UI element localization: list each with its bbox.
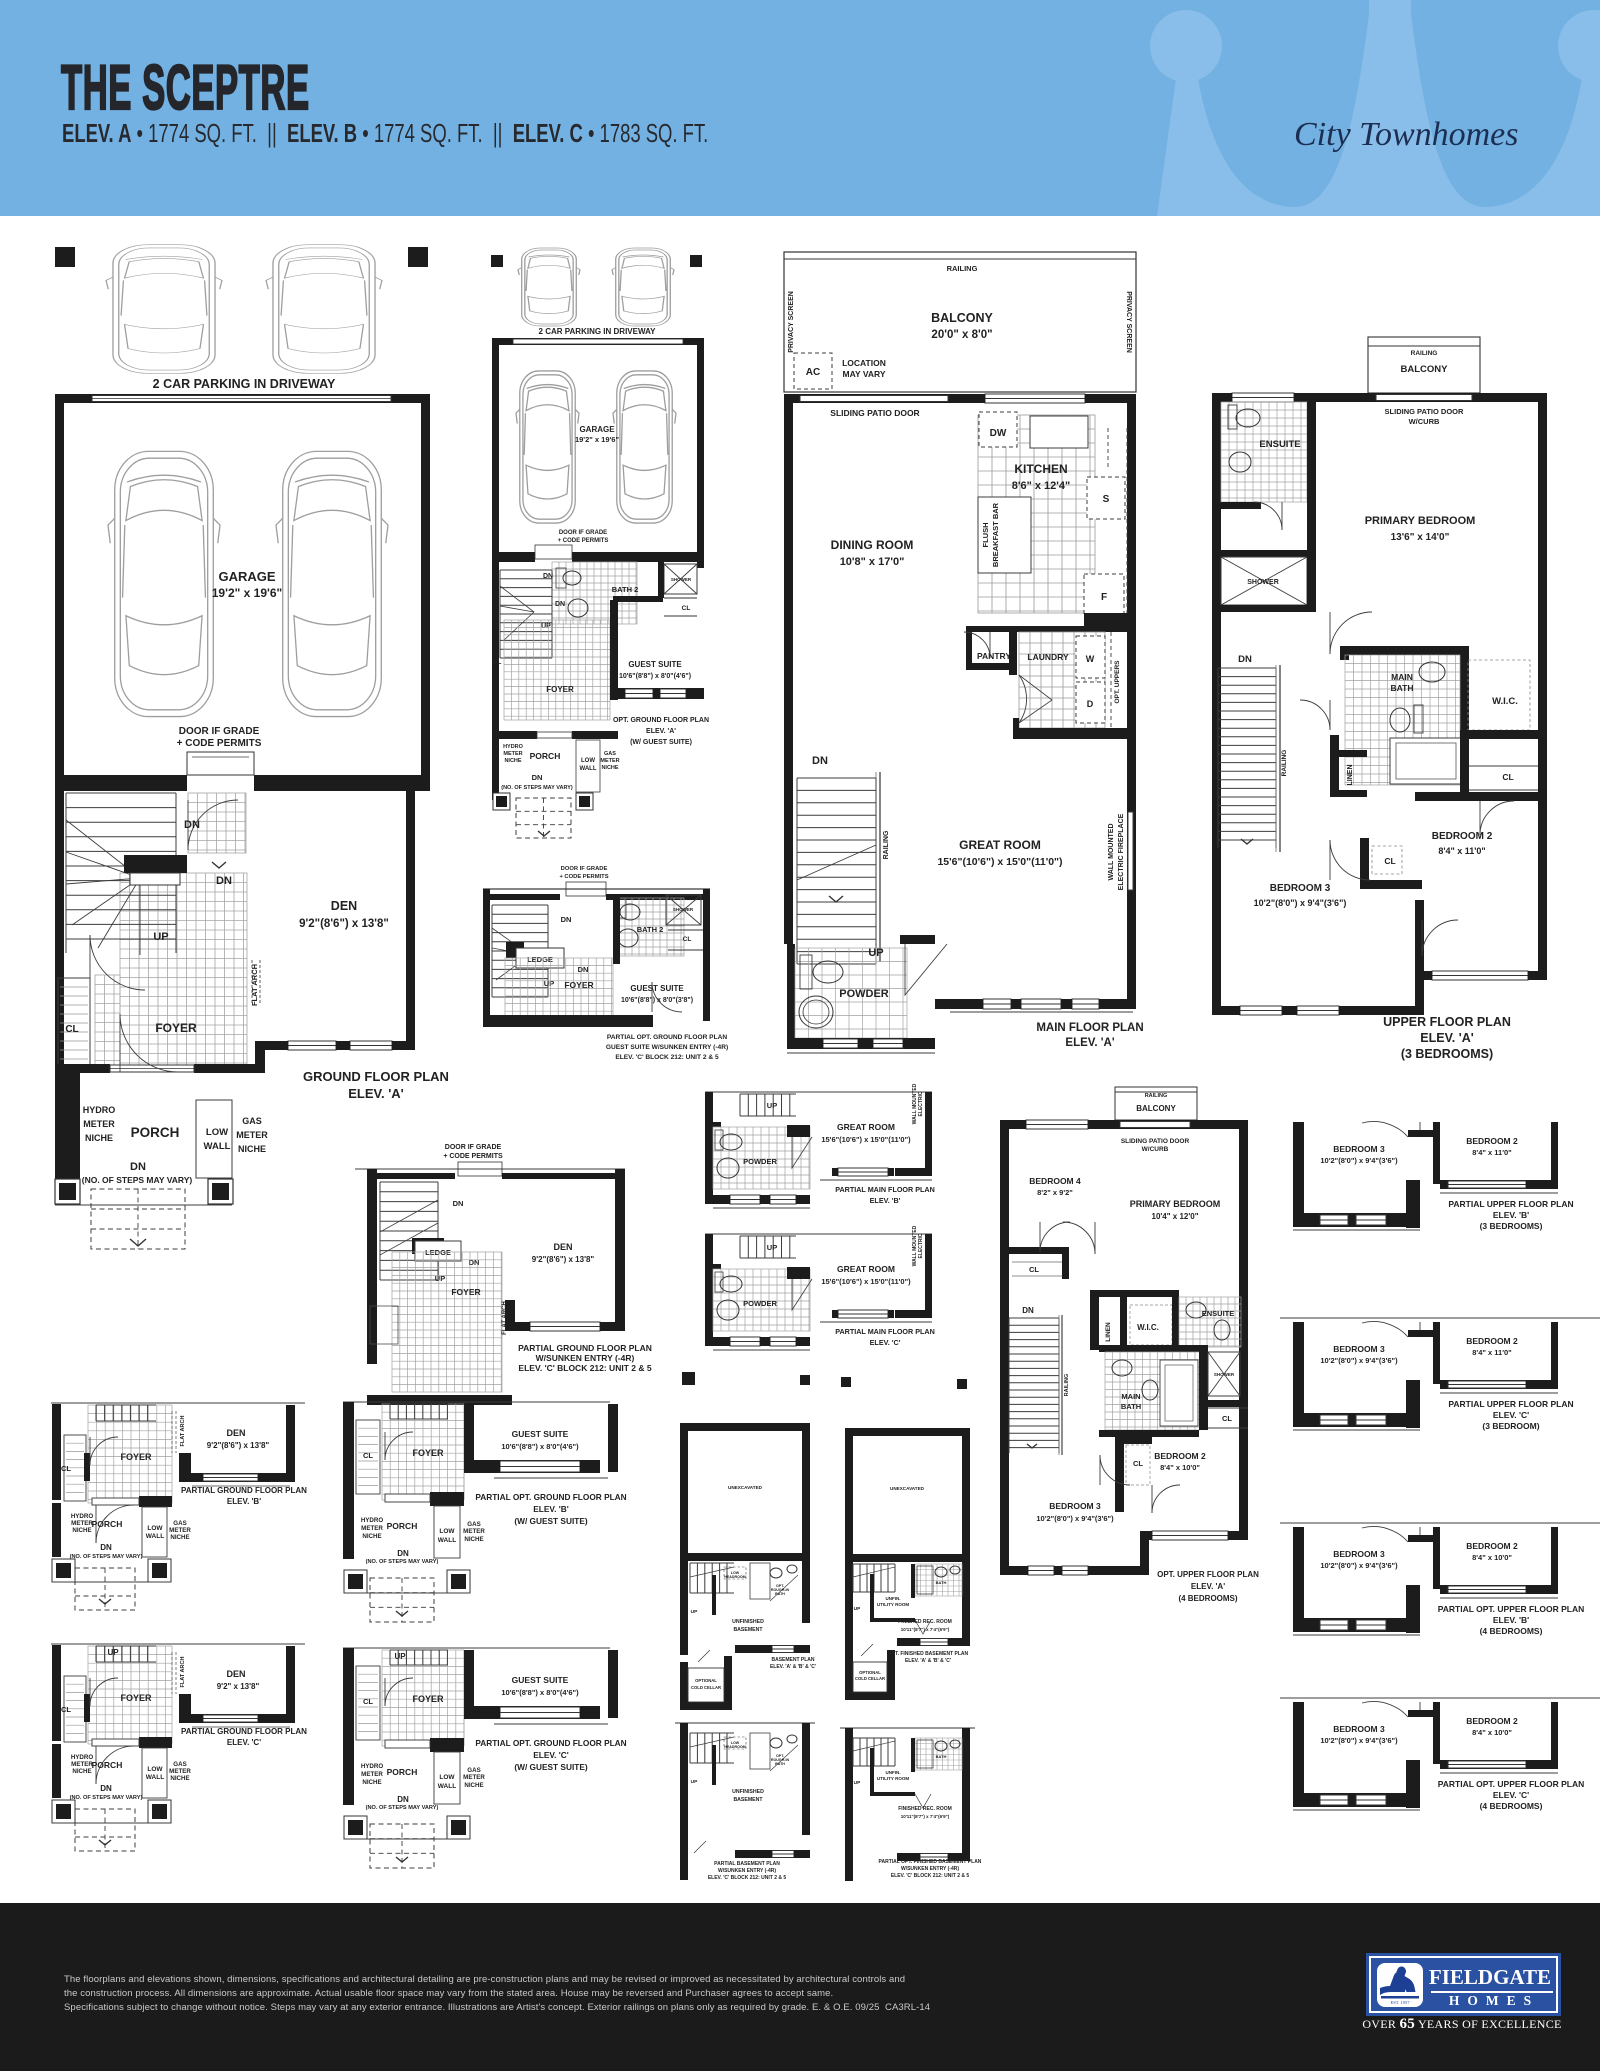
svg-text:LEDGE: LEDGE xyxy=(425,1248,451,1257)
svg-text:BEDROOM 3: BEDROOM 3 xyxy=(1333,1344,1385,1354)
svg-text:BATH 2: BATH 2 xyxy=(637,925,664,934)
svg-text:PORCH: PORCH xyxy=(530,751,561,761)
svg-text:DEN: DEN xyxy=(331,899,357,913)
svg-text:GAS: GAS xyxy=(467,1521,480,1528)
svg-text:BREAKFAST BAR: BREAKFAST BAR xyxy=(991,502,1000,567)
svg-text:8'6" x 12'4": 8'6" x 12'4" xyxy=(1012,480,1070,492)
svg-text:DN: DN xyxy=(100,1543,112,1552)
svg-text:W: W xyxy=(1086,654,1095,664)
svg-text:BEDROOM 3: BEDROOM 3 xyxy=(1049,1501,1101,1511)
svg-text:SHOWER: SHOWER xyxy=(671,577,692,582)
svg-text:SHOWER: SHOWER xyxy=(673,907,694,912)
svg-text:FOYER: FOYER xyxy=(412,1448,444,1458)
svg-text:D: D xyxy=(1087,699,1094,709)
svg-text:BEDROOM 3: BEDROOM 3 xyxy=(1270,883,1331,894)
svg-text:BEDROOM 2: BEDROOM 2 xyxy=(1154,1451,1206,1461)
svg-text:FINISHED REC. ROOM: FINISHED REC. ROOM xyxy=(898,1619,952,1625)
svg-text:PRIVACY SCREEN: PRIVACY SCREEN xyxy=(1125,291,1132,353)
svg-text:ELEV. 'A' & 'B' & 'C': ELEV. 'A' & 'B' & 'C' xyxy=(770,1664,816,1670)
svg-text:(3 BEDROOMS): (3 BEDROOMS) xyxy=(1401,1047,1493,1061)
svg-text:METER: METER xyxy=(503,751,522,757)
svg-text:2 CAR PARKING IN DRIVEWAY: 2 CAR PARKING IN DRIVEWAY xyxy=(153,377,336,391)
svg-text:CL: CL xyxy=(61,1464,71,1473)
svg-text:DN: DN xyxy=(130,1161,146,1173)
svg-text:(3 BEDROOM): (3 BEDROOM) xyxy=(1482,1421,1539,1431)
svg-text:ELEV. 'A': ELEV. 'A' xyxy=(1420,1031,1473,1045)
svg-text:10'2"(8'0") x 9'4"(3'6"): 10'2"(8'0") x 9'4"(3'6") xyxy=(1036,1514,1114,1523)
svg-text:(NO. OF STEPS MAY VARY): (NO. OF STEPS MAY VARY) xyxy=(501,785,573,791)
svg-text:UP: UP xyxy=(767,1243,777,1252)
svg-text:PARTIAL GROUND FLOOR PLAN: PARTIAL GROUND FLOOR PLAN xyxy=(181,1727,307,1736)
svg-text:(NO. OF STEPS MAY VARY): (NO. OF STEPS MAY VARY) xyxy=(70,1795,143,1801)
svg-text:LOW: LOW xyxy=(147,1525,163,1532)
svg-text:CL: CL xyxy=(1384,856,1395,866)
svg-text:NICHE: NICHE xyxy=(170,1534,189,1541)
svg-text:SHOWER: SHOWER xyxy=(1214,1372,1235,1377)
svg-text:DOOR IF GRADE: DOOR IF GRADE xyxy=(179,726,260,737)
svg-text:UP: UP xyxy=(691,1609,698,1615)
svg-text:+ CODE PERMITS: + CODE PERMITS xyxy=(559,874,608,880)
svg-text:UNEXCAVATED: UNEXCAVATED xyxy=(728,1485,763,1490)
svg-text:10'11"(8'7") x 7'4"(6'9"): 10'11"(8'7") x 7'4"(6'9") xyxy=(901,1814,950,1819)
svg-text:10'2"(8'0") x 9'4"(3'6"): 10'2"(8'0") x 9'4"(3'6") xyxy=(1320,1356,1398,1365)
svg-text:WALL: WALL xyxy=(438,1537,456,1544)
svg-text:BEDROOM 2: BEDROOM 2 xyxy=(1432,831,1493,842)
svg-text:ELEV. 'B': ELEV. 'B' xyxy=(870,1196,901,1205)
svg-text:METER: METER xyxy=(463,1528,485,1535)
svg-text:LOW: LOW xyxy=(439,1774,455,1781)
svg-text:HYDRO: HYDRO xyxy=(361,1763,384,1770)
svg-text:HYDRO: HYDRO xyxy=(503,744,524,750)
svg-text:GAS: GAS xyxy=(242,1116,262,1126)
svg-text:9'2"(8'6") x 13'8": 9'2"(8'6") x 13'8" xyxy=(532,1255,595,1264)
svg-text:UP: UP xyxy=(854,1780,861,1786)
svg-text:(W/ GUEST SUITE): (W/ GUEST SUITE) xyxy=(514,1762,588,1772)
svg-text:POWDER: POWDER xyxy=(743,1157,777,1166)
svg-text:RAILING: RAILING xyxy=(947,264,978,273)
svg-text:PARTIAL OPT. FINISHED BASEMENT: PARTIAL OPT. FINISHED BASEMENT PLAN xyxy=(879,1859,982,1865)
svg-text:DN: DN xyxy=(578,965,589,974)
svg-text:W/SUNKEN ENTRY (-4R): W/SUNKEN ENTRY (-4R) xyxy=(901,1866,959,1872)
svg-text:PARTIAL OPT. UPPER FLOOR PLAN: PARTIAL OPT. UPPER FLOOR PLAN xyxy=(1438,1604,1585,1614)
svg-text:GREAT ROOM: GREAT ROOM xyxy=(837,1122,895,1132)
svg-text:PARTIAL OPT. GROUND FLOOR PLAN: PARTIAL OPT. GROUND FLOOR PLAN xyxy=(475,1738,626,1748)
svg-text:COLD CELLAR: COLD CELLAR xyxy=(691,1685,721,1690)
svg-text:W/CURB: W/CURB xyxy=(1409,417,1440,426)
svg-text:LINEN: LINEN xyxy=(1347,765,1354,786)
svg-text:COLD CELLAR: COLD CELLAR xyxy=(855,1676,885,1681)
svg-text:UP: UP xyxy=(541,623,551,630)
svg-text:GREAT ROOM: GREAT ROOM xyxy=(959,838,1041,852)
svg-text:PORCH: PORCH xyxy=(387,1521,418,1531)
svg-text:RAILING: RAILING xyxy=(883,830,890,859)
svg-text:CL: CL xyxy=(1133,1459,1143,1468)
svg-text:10'8" x 17'0": 10'8" x 17'0" xyxy=(840,556,905,568)
svg-text:NICHE: NICHE xyxy=(238,1144,266,1154)
svg-text:PARTIAL OPT. GROUND FLOOR PLAN: PARTIAL OPT. GROUND FLOOR PLAN xyxy=(607,1034,728,1041)
svg-text:PRIMARY BEDROOM: PRIMARY BEDROOM xyxy=(1365,515,1476,527)
svg-text:METER: METER xyxy=(236,1130,268,1140)
svg-text:10'2"(8'0") x 9'4"(3'6"): 10'2"(8'0") x 9'4"(3'6") xyxy=(1320,1156,1398,1165)
svg-text:MAIN FLOOR PLAN: MAIN FLOOR PLAN xyxy=(1036,1022,1143,1034)
svg-text:PRIVACY SCREEN: PRIVACY SCREEN xyxy=(788,291,795,353)
svg-text:CL: CL xyxy=(363,1697,373,1706)
svg-text:19'2" x 19'6": 19'2" x 19'6" xyxy=(212,586,282,600)
svg-text:DEN: DEN xyxy=(226,1669,245,1679)
svg-text:FLAT ARCH: FLAT ARCH xyxy=(180,1657,186,1688)
svg-text:CL: CL xyxy=(1502,772,1513,782)
svg-text:METER: METER xyxy=(600,758,619,764)
svg-text:DN: DN xyxy=(216,875,232,887)
svg-text:OPTIONAL: OPTIONAL xyxy=(859,1670,881,1675)
svg-text:ELEV. 'A': ELEV. 'A' xyxy=(1191,1582,1225,1591)
svg-text:DOOR IF GRADE: DOOR IF GRADE xyxy=(561,866,608,872)
svg-text:PARTIAL UPPER FLOOR PLAN: PARTIAL UPPER FLOOR PLAN xyxy=(1448,1199,1573,1209)
svg-text:METER: METER xyxy=(361,1525,383,1532)
svg-text:(NO. OF STEPS MAY VARY): (NO. OF STEPS MAY VARY) xyxy=(366,1805,439,1811)
svg-text:+ CODE PERMITS: + CODE PERMITS xyxy=(177,738,262,749)
svg-text:UNFIN.: UNFIN. xyxy=(886,1770,901,1775)
svg-text:PARTIAL OPT. GROUND FLOOR PLAN: PARTIAL OPT. GROUND FLOOR PLAN xyxy=(475,1492,626,1502)
svg-text:W.I.C.: W.I.C. xyxy=(1492,696,1518,707)
svg-text:15'6"(10'6") x 15'0"(11'0"): 15'6"(10'6") x 15'0"(11'0") xyxy=(821,1277,911,1286)
svg-text:DN: DN xyxy=(397,1795,409,1804)
svg-text:SLIDING PATIO DOOR: SLIDING PATIO DOOR xyxy=(830,408,919,418)
svg-text:15'6"(10'6") x 15'0"(11'0"): 15'6"(10'6") x 15'0"(11'0") xyxy=(937,856,1062,868)
svg-text:UP: UP xyxy=(544,979,554,988)
svg-text:DOOR IF GRADE: DOOR IF GRADE xyxy=(559,530,607,536)
svg-text:8'4" x 10'0": 8'4" x 10'0" xyxy=(1472,1728,1512,1737)
svg-text:ELEV. 'B': ELEV. 'B' xyxy=(227,1497,261,1506)
svg-text:WALL: WALL xyxy=(204,1141,231,1152)
svg-text:10'11"(8'7") x 7'4"(6'9"): 10'11"(8'7") x 7'4"(6'9") xyxy=(901,1627,950,1632)
svg-text:BASEMENT PLAN: BASEMENT PLAN xyxy=(771,1657,814,1663)
svg-text:PARTIAL BASEMENT PLAN: PARTIAL BASEMENT PLAN xyxy=(714,1861,780,1867)
svg-text:GARAGE: GARAGE xyxy=(579,425,615,434)
svg-text:GUEST SUITE: GUEST SUITE xyxy=(628,660,682,669)
svg-text:W/SUNKEN ENTRY (-4R): W/SUNKEN ENTRY (-4R) xyxy=(718,1868,776,1874)
svg-text:DN: DN xyxy=(184,819,200,831)
svg-text:POWDER: POWDER xyxy=(839,988,889,1000)
svg-text:2 CAR PARKING IN DRIVEWAY: 2 CAR PARKING IN DRIVEWAY xyxy=(539,327,657,336)
svg-text:NICHE: NICHE xyxy=(85,1133,113,1143)
svg-text:LOW: LOW xyxy=(147,1766,163,1773)
svg-text:DN: DN xyxy=(1022,1306,1034,1315)
svg-text:PORCH: PORCH xyxy=(131,1125,180,1140)
svg-text:WALL: WALL xyxy=(438,1783,456,1790)
svg-text:(W/ GUEST SUITE): (W/ GUEST SUITE) xyxy=(514,1516,588,1526)
svg-text:GARAGE: GARAGE xyxy=(218,569,275,584)
svg-text:CL: CL xyxy=(61,1705,71,1714)
svg-text:GUEST SUITE: GUEST SUITE xyxy=(512,1675,569,1685)
svg-text:ELECTRIC FIREPLACE: ELECTRIC FIREPLACE xyxy=(1118,813,1125,890)
svg-text:LOW: LOW xyxy=(439,1528,455,1535)
svg-text:PARTIAL OPT. UPPER FLOOR PLAN: PARTIAL OPT. UPPER FLOOR PLAN xyxy=(1438,1779,1585,1789)
svg-text:LOCATION: LOCATION xyxy=(842,358,886,368)
svg-text:BALCONY: BALCONY xyxy=(931,311,993,325)
svg-text:CL: CL xyxy=(493,659,502,666)
svg-text:WALL: WALL xyxy=(146,1533,164,1540)
svg-text:8'4" x 11'0": 8'4" x 11'0" xyxy=(1472,1348,1512,1357)
svg-text:BATH: BATH xyxy=(936,1754,947,1759)
svg-text:SLIDING PATIO DOOR: SLIDING PATIO DOOR xyxy=(1121,1138,1190,1145)
svg-text:PARTIAL MAIN FLOOR PLAN: PARTIAL MAIN FLOOR PLAN xyxy=(835,1327,935,1336)
svg-text:ELEV. 'A': ELEV. 'A' xyxy=(646,728,676,735)
svg-text:CL: CL xyxy=(363,1451,373,1460)
svg-text:DN: DN xyxy=(100,1784,112,1793)
svg-text:NICHE: NICHE xyxy=(464,1782,483,1789)
svg-text:SHOWER: SHOWER xyxy=(1247,579,1279,586)
svg-text:ENSUITE: ENSUITE xyxy=(1259,439,1300,450)
svg-text:PARTIAL GROUND FLOOR PLAN: PARTIAL GROUND FLOOR PLAN xyxy=(181,1486,307,1495)
svg-text:ELEV. 'B': ELEV. 'B' xyxy=(533,1504,568,1514)
svg-text:(W/ GUEST SUITE): (W/ GUEST SUITE) xyxy=(630,739,692,746)
svg-text:UTILITY ROOM: UTILITY ROOM xyxy=(877,1602,909,1607)
svg-text:LINEN: LINEN xyxy=(1105,1322,1112,1342)
svg-text:PRIMARY BEDROOM: PRIMARY BEDROOM xyxy=(1130,1199,1221,1209)
svg-text:MAY VARY: MAY VARY xyxy=(843,369,886,379)
svg-text:HEADROOM: HEADROOM xyxy=(724,1745,745,1749)
svg-text:ELECTRIC: ELECTRIC xyxy=(918,1091,924,1116)
svg-text:BATH: BATH xyxy=(1121,1402,1141,1411)
svg-text:LEDGE: LEDGE xyxy=(527,955,553,964)
svg-text:ELEV. 'C': ELEV. 'C' xyxy=(227,1738,261,1747)
svg-text:FOYER: FOYER xyxy=(120,1693,152,1703)
svg-text:ELEV. 'C': ELEV. 'C' xyxy=(1493,1410,1529,1420)
svg-text:HYDRO: HYDRO xyxy=(361,1517,384,1524)
svg-text:9'2" x 13'8": 9'2" x 13'8" xyxy=(217,1682,260,1691)
svg-text:ELEV. 'A': ELEV. 'A' xyxy=(348,1086,404,1101)
svg-text:UNFINISHED: UNFINISHED xyxy=(732,1619,764,1625)
svg-text:NICHE: NICHE xyxy=(170,1775,189,1782)
svg-text:10'2"(8'0") x 9'4"(3'6"): 10'2"(8'0") x 9'4"(3'6") xyxy=(1320,1561,1398,1570)
svg-text:ELEV. 'C': ELEV. 'C' xyxy=(1493,1790,1529,1800)
svg-text:ELEV. 'C' BLOCK 212: UNIT 2 &: ELEV. 'C' BLOCK 212: UNIT 2 & 5 xyxy=(518,1363,651,1373)
svg-text:FOYER: FOYER xyxy=(120,1452,152,1462)
svg-text:13'6" x 14'0": 13'6" x 14'0" xyxy=(1391,532,1450,543)
svg-text:DN: DN xyxy=(1238,654,1252,665)
svg-text:DN: DN xyxy=(453,1199,464,1208)
svg-text:GUEST SUITE W/SUNKEN ENTRY (-4: GUEST SUITE W/SUNKEN ENTRY (-4R) xyxy=(606,1044,728,1051)
svg-text:FLUSH: FLUSH xyxy=(981,523,990,548)
svg-text:UNFINISHED: UNFINISHED xyxy=(732,1789,764,1795)
svg-text:S: S xyxy=(1103,494,1110,505)
svg-text:FLAT ARCH: FLAT ARCH xyxy=(180,1416,186,1447)
svg-text:DN: DN xyxy=(812,755,828,767)
svg-text:DN: DN xyxy=(543,573,553,580)
svg-text:ELEV. 'C' BLOCK 212: UNIT 2 &: ELEV. 'C' BLOCK 212: UNIT 2 & 5 xyxy=(708,1875,787,1881)
svg-text:GAS: GAS xyxy=(173,1520,186,1527)
svg-text:BASEMENT: BASEMENT xyxy=(733,1627,763,1633)
svg-text:EST. 1957: EST. 1957 xyxy=(1391,2000,1411,2005)
svg-text:FOYER: FOYER xyxy=(155,1021,197,1035)
svg-text:NICHE: NICHE xyxy=(362,1533,381,1540)
svg-text:(NO. OF STEPS MAY VARY): (NO. OF STEPS MAY VARY) xyxy=(366,1559,439,1565)
svg-text:10'6"(8'8") x 8'0"(4'6"): 10'6"(8'8") x 8'0"(4'6") xyxy=(501,1688,579,1697)
svg-text:FOYER: FOYER xyxy=(451,1287,480,1297)
svg-text:UTILITY ROOM: UTILITY ROOM xyxy=(877,1776,909,1781)
svg-text:10'2"(8'0") x 9'4"(3'6"): 10'2"(8'0") x 9'4"(3'6") xyxy=(1320,1736,1398,1745)
svg-text:WALL: WALL xyxy=(580,766,597,772)
svg-text:NICHE: NICHE xyxy=(72,1768,91,1775)
svg-text:(4 BEDROOMS): (4 BEDROOMS) xyxy=(1480,1801,1543,1811)
svg-text:ELEV. 'C' BLOCK 212: UNIT 2 &: ELEV. 'C' BLOCK 212: UNIT 2 & 5 xyxy=(615,1054,719,1061)
svg-text:BEDROOM 3: BEDROOM 3 xyxy=(1333,1144,1385,1154)
svg-text:DN: DN xyxy=(561,915,572,924)
svg-text:NICHE: NICHE xyxy=(362,1779,381,1786)
svg-text:BATH: BATH xyxy=(775,1762,785,1766)
svg-text:UP: UP xyxy=(394,1652,406,1661)
svg-text:UP: UP xyxy=(691,1779,698,1785)
svg-text:UNFIN.: UNFIN. xyxy=(886,1596,901,1601)
svg-text:FOYER: FOYER xyxy=(546,685,574,694)
svg-text:BEDROOM 2: BEDROOM 2 xyxy=(1466,1716,1518,1726)
svg-text:(4 BEDROOMS): (4 BEDROOMS) xyxy=(1178,1594,1237,1603)
svg-text:OPT. UPPERS: OPT. UPPERS xyxy=(1114,660,1121,704)
svg-text:OPTIONAL: OPTIONAL xyxy=(695,1678,717,1683)
svg-text:ELEV. 'C' BLOCK 212: UNIT 2 &: ELEV. 'C' BLOCK 212: UNIT 2 & 5 xyxy=(891,1873,970,1879)
svg-text:10'6"(8'8") x 8'0"(4'6"): 10'6"(8'8") x 8'0"(4'6") xyxy=(619,673,691,680)
svg-text:WALL MOUNTED: WALL MOUNTED xyxy=(1108,823,1115,880)
svg-text:KITCHEN: KITCHEN xyxy=(1014,462,1067,476)
svg-text:CL: CL xyxy=(682,605,691,612)
svg-text:LOW: LOW xyxy=(206,1127,228,1138)
svg-text:ELEV. 'C': ELEV. 'C' xyxy=(870,1338,901,1347)
svg-text:(3 BEDROOMS): (3 BEDROOMS) xyxy=(1480,1221,1543,1231)
svg-text:FLAT ARCH: FLAT ARCH xyxy=(250,964,259,1006)
svg-text:CL: CL xyxy=(683,936,692,943)
svg-text:DN: DN xyxy=(532,773,543,782)
svg-text:20'0" x 8'0": 20'0" x 8'0" xyxy=(931,329,992,341)
svg-text:RAILING: RAILING xyxy=(1281,750,1288,777)
svg-text:10'4" x 12'0": 10'4" x 12'0" xyxy=(1152,1212,1199,1221)
svg-text:OPT. UPPER FLOOR PLAN: OPT. UPPER FLOOR PLAN xyxy=(1157,1570,1259,1579)
svg-text:GUEST SUITE: GUEST SUITE xyxy=(512,1429,569,1439)
svg-text:UPPER FLOOR PLAN: UPPER FLOOR PLAN xyxy=(1383,1015,1511,1029)
svg-text:HYDRO: HYDRO xyxy=(71,1754,94,1761)
svg-text:PANTRY: PANTRY xyxy=(977,651,1011,661)
svg-text:PARTIAL UPPER FLOOR PLAN: PARTIAL UPPER FLOOR PLAN xyxy=(1448,1399,1573,1409)
svg-text:SLIDING PATIO DOOR: SLIDING PATIO DOOR xyxy=(1385,407,1464,416)
svg-text:METER: METER xyxy=(463,1774,485,1781)
svg-text:BATH 2: BATH 2 xyxy=(612,585,639,594)
svg-text:F: F xyxy=(1101,592,1107,603)
svg-text:10'2"(8'0") x 9'4"(3'6"): 10'2"(8'0") x 9'4"(3'6") xyxy=(1254,898,1347,908)
svg-text:UP: UP xyxy=(854,1606,861,1612)
svg-text:PORCH: PORCH xyxy=(92,1519,123,1529)
svg-text:LAUNDRY: LAUNDRY xyxy=(1027,652,1069,662)
svg-text:BASEMENT: BASEMENT xyxy=(733,1797,763,1803)
svg-text:RAILING: RAILING xyxy=(1145,1093,1168,1099)
svg-text:9'2"(8'6") x 13'8": 9'2"(8'6") x 13'8" xyxy=(299,918,389,930)
svg-text:GAS: GAS xyxy=(604,751,616,757)
svg-text:NICHE: NICHE xyxy=(504,758,521,764)
svg-text:CL: CL xyxy=(1222,1414,1232,1423)
svg-text:PORCH: PORCH xyxy=(92,1760,123,1770)
svg-text:8'4" x 11'0": 8'4" x 11'0" xyxy=(1438,846,1485,856)
svg-text:GAS: GAS xyxy=(467,1767,480,1774)
svg-text:8'4" x 10'0": 8'4" x 10'0" xyxy=(1160,1463,1200,1472)
svg-text:NICHE: NICHE xyxy=(601,765,618,771)
svg-text:OPT. FINISHED BASEMENT PLAN: OPT. FINISHED BASEMENT PLAN xyxy=(888,1651,969,1657)
svg-text:FOYER: FOYER xyxy=(412,1694,444,1704)
svg-text:HYDRO: HYDRO xyxy=(83,1105,116,1115)
svg-text:BEDROOM 3: BEDROOM 3 xyxy=(1333,1724,1385,1734)
svg-text:OPT. GROUND FLOOR PLAN: OPT. GROUND FLOOR PLAN xyxy=(613,717,709,724)
svg-text:BEDROOM 4: BEDROOM 4 xyxy=(1029,1176,1081,1186)
svg-text:W/SUNKEN ENTRY (-4R): W/SUNKEN ENTRY (-4R) xyxy=(536,1353,635,1363)
svg-text:WALL: WALL xyxy=(146,1774,164,1781)
svg-text:UNEXCAVATED: UNEXCAVATED xyxy=(890,1486,925,1491)
svg-text:RAILING: RAILING xyxy=(1064,1374,1070,1397)
svg-text:DINING ROOM: DINING ROOM xyxy=(831,538,914,552)
svg-text:ENSUITE: ENSUITE xyxy=(1202,1309,1235,1318)
svg-text:PARTIAL GROUND FLOOR PLAN: PARTIAL GROUND FLOOR PLAN xyxy=(518,1343,652,1353)
svg-text:GROUND FLOOR PLAN: GROUND FLOOR PLAN xyxy=(303,1069,449,1084)
svg-text:DN: DN xyxy=(397,1549,409,1558)
svg-text:BALCONY: BALCONY xyxy=(1136,1104,1176,1113)
svg-text:19'2" x 19'6": 19'2" x 19'6" xyxy=(575,435,619,444)
svg-text:AC: AC xyxy=(806,367,820,378)
svg-text:NICHE: NICHE xyxy=(464,1536,483,1543)
svg-text:GAS: GAS xyxy=(173,1761,186,1768)
svg-text:UP: UP xyxy=(767,1101,777,1110)
svg-text:9'2"(8'6") x 13'8": 9'2"(8'6") x 13'8" xyxy=(207,1441,270,1450)
svg-text:+ CODE PERMITS: + CODE PERMITS xyxy=(558,538,609,544)
svg-text:BATH: BATH xyxy=(1391,683,1414,693)
svg-text:(NO. OF STEPS MAY VARY): (NO. OF STEPS MAY VARY) xyxy=(82,1175,193,1185)
svg-text:DEN: DEN xyxy=(226,1428,245,1438)
svg-text:ELEV. 'B': ELEV. 'B' xyxy=(1493,1210,1529,1220)
svg-text:BEDROOM 2: BEDROOM 2 xyxy=(1466,1136,1518,1146)
svg-text:GREAT ROOM: GREAT ROOM xyxy=(837,1264,895,1274)
svg-text:FOYER: FOYER xyxy=(564,980,593,990)
svg-text:BATH: BATH xyxy=(936,1580,947,1585)
svg-text:ELEV. 'C': ELEV. 'C' xyxy=(533,1750,568,1760)
svg-text:ELEV. 'A': ELEV. 'A' xyxy=(1065,1037,1114,1049)
svg-text:W/CURB: W/CURB xyxy=(1142,1146,1169,1153)
svg-text:ELEV. 'B': ELEV. 'B' xyxy=(1493,1615,1529,1625)
svg-text:8'2" x 9'2": 8'2" x 9'2" xyxy=(1037,1188,1073,1197)
svg-text:UP: UP xyxy=(153,931,168,943)
svg-text:DOOR IF GRADE: DOOR IF GRADE xyxy=(445,1144,502,1151)
svg-text:BEDROOM 2: BEDROOM 2 xyxy=(1466,1336,1518,1346)
svg-text:MAIN: MAIN xyxy=(1121,1392,1140,1401)
svg-text:METER: METER xyxy=(169,1768,191,1775)
svg-text:POWDER: POWDER xyxy=(743,1299,777,1308)
svg-text:(4 BEDROOMS): (4 BEDROOMS) xyxy=(1480,1626,1543,1636)
svg-text:RAILING: RAILING xyxy=(1411,350,1438,357)
svg-text:PORCH: PORCH xyxy=(387,1767,418,1777)
svg-text:METER: METER xyxy=(361,1771,383,1778)
svg-text:FINISHED REC. ROOM: FINISHED REC. ROOM xyxy=(898,1806,952,1812)
svg-text:DW: DW xyxy=(990,428,1007,439)
svg-text:ELECTRIC: ELECTRIC xyxy=(918,1233,924,1258)
svg-text:CL: CL xyxy=(65,1024,78,1035)
svg-text:BEDROOM 2: BEDROOM 2 xyxy=(1466,1541,1518,1551)
svg-text:W.I.C.: W.I.C. xyxy=(1137,1323,1159,1332)
svg-text:15'6"(10'6") x 15'0"(11'0"): 15'6"(10'6") x 15'0"(11'0") xyxy=(821,1135,911,1144)
svg-text:8'4" x 10'0": 8'4" x 10'0" xyxy=(1472,1553,1512,1562)
svg-text:BEDROOM 3: BEDROOM 3 xyxy=(1333,1549,1385,1559)
svg-text:DEN: DEN xyxy=(553,1242,572,1252)
svg-text:METER: METER xyxy=(83,1119,115,1129)
svg-text:NICHE: NICHE xyxy=(72,1527,91,1534)
svg-text:HEADROOM: HEADROOM xyxy=(724,1575,745,1579)
svg-text:DN: DN xyxy=(555,601,565,608)
svg-text:MAIN: MAIN xyxy=(1391,672,1413,682)
svg-text:(NO. OF STEPS MAY VARY): (NO. OF STEPS MAY VARY) xyxy=(70,1554,143,1560)
